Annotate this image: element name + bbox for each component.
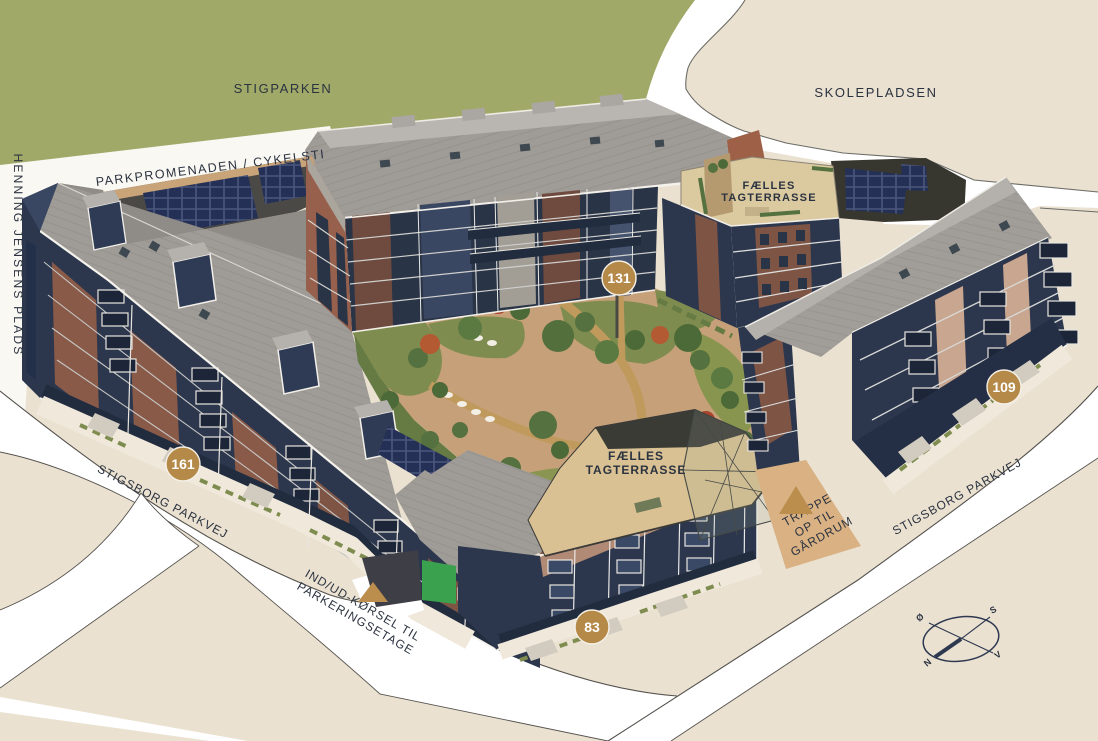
svg-text:83: 83 [584,619,600,635]
svg-text:SKOLEPLADSEN: SKOLEPLADSEN [814,85,937,100]
svg-text:STIGPARKEN: STIGPARKEN [234,81,333,96]
svg-text:TAGTERRASSE: TAGTERRASSE [586,463,687,477]
svg-text:161: 161 [171,456,195,472]
svg-text:109: 109 [992,379,1016,395]
svg-text:TAGTERRASSE: TAGTERRASSE [721,192,817,204]
svg-text:FÆLLES: FÆLLES [742,180,795,192]
svg-text:131: 131 [607,270,631,286]
svg-text:HENNING JENSENS PLADS: HENNING JENSENS PLADS [11,154,25,357]
svg-text:FÆLLES: FÆLLES [608,449,664,463]
